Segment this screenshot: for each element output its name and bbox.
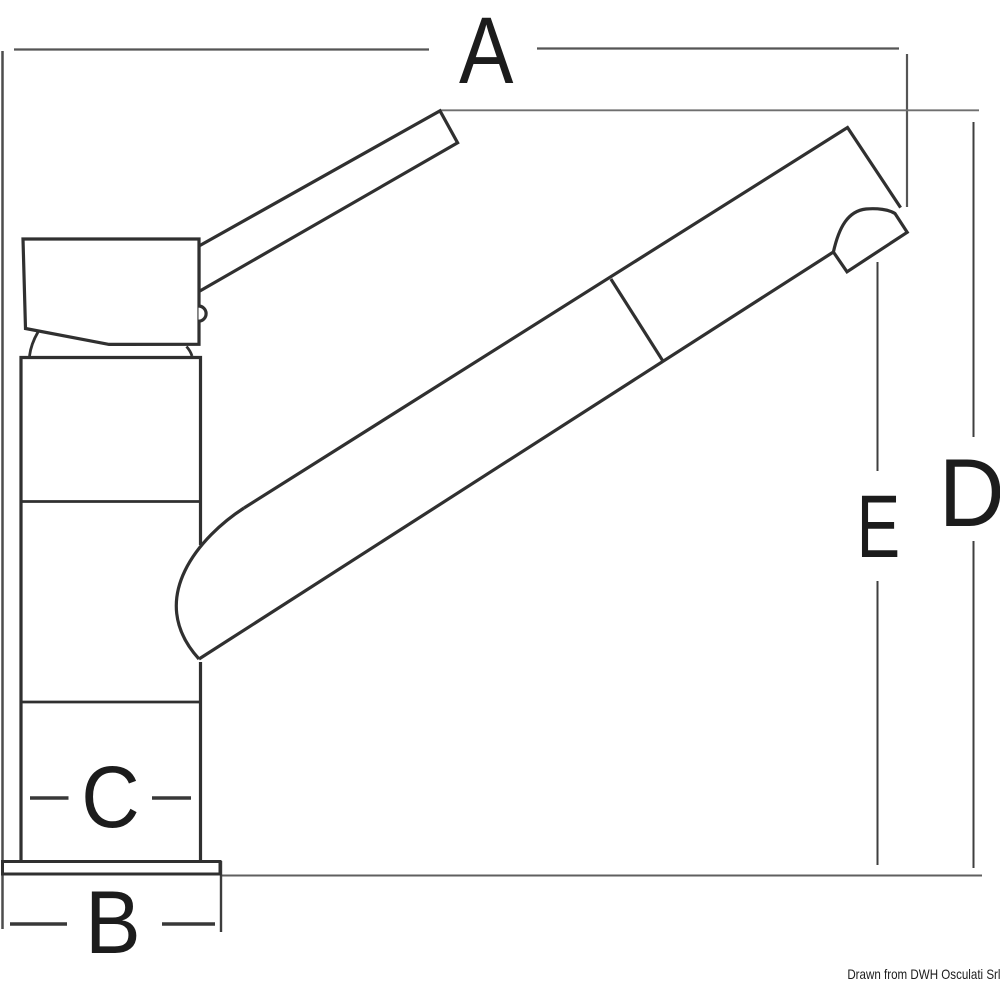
svg-text:E: E: [857, 476, 901, 576]
svg-text:A: A: [459, 0, 513, 103]
svg-text:B: B: [85, 874, 141, 973]
svg-text:D: D: [939, 439, 1000, 547]
svg-text:Drawn from DWH Osculati Srl: Drawn from DWH Osculati Srl: [847, 966, 1000, 982]
svg-text:C: C: [81, 748, 139, 846]
